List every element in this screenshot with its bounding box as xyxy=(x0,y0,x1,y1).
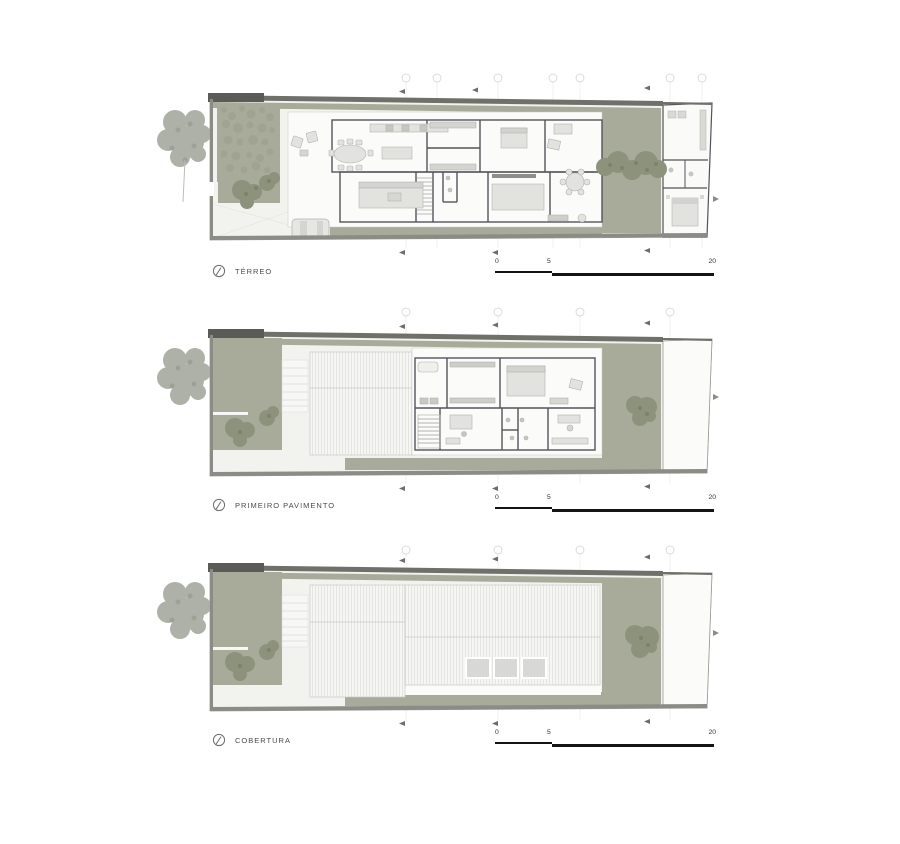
scale-bar-primeiro: 0 5 20 xyxy=(495,494,714,514)
scale-bar-segment xyxy=(552,744,714,747)
plan-label-row-cobertura: COBERTURA xyxy=(212,733,291,747)
annex-strip xyxy=(663,339,712,473)
scale-number-20: 20 xyxy=(708,729,716,736)
large-tree xyxy=(157,348,211,405)
scale-bar-segment xyxy=(495,742,552,745)
grid-bubbles xyxy=(402,546,674,554)
lower-roof xyxy=(310,352,415,455)
scale-bar-segment xyxy=(495,507,552,510)
scale-bar-cobertura: 0 5 20 xyxy=(495,729,714,749)
plan-label-row-terreo: TÉRREO xyxy=(212,264,272,278)
plan-label-cobertura: COBERTURA xyxy=(235,736,291,745)
car xyxy=(292,219,329,238)
scale-number-5: 5 xyxy=(547,494,551,501)
level-marker-icon xyxy=(212,733,226,747)
scale-bar-segment xyxy=(552,509,714,512)
large-tree xyxy=(157,110,211,202)
annex-strip xyxy=(663,573,712,708)
level-marker-icon xyxy=(212,498,226,512)
scale-bar-terreo: 0 5 20 xyxy=(495,258,714,278)
cobertura-plan-drawing xyxy=(150,540,750,740)
annex-unit xyxy=(663,103,712,237)
scale-number-0: 0 xyxy=(495,729,499,736)
grid-bubbles xyxy=(402,308,674,316)
scale-bar-segment xyxy=(495,271,552,274)
level-marker-icon xyxy=(212,264,226,278)
floor-plan-sheet: TÉRREO 0 5 20 xyxy=(0,0,900,844)
grid-bubbles xyxy=(402,74,706,82)
large-tree xyxy=(157,582,211,639)
scale-number-0: 0 xyxy=(495,494,499,501)
scale-number-20: 20 xyxy=(708,494,716,501)
scale-number-20: 20 xyxy=(708,258,716,265)
terreo-plan-drawing xyxy=(150,62,750,262)
skylights xyxy=(466,658,546,678)
plan-label-primeiro-pavimento: PRIMEIRO PAVIMENTO xyxy=(235,501,335,510)
scale-number-0: 0 xyxy=(495,258,499,265)
plan-label-row-primeiro: PRIMEIRO PAVIMENTO xyxy=(212,498,335,512)
roof-planes xyxy=(310,585,601,697)
scale-number-5: 5 xyxy=(547,729,551,736)
plan-label-terreo: TÉRREO xyxy=(235,267,272,276)
scale-number-5: 5 xyxy=(547,258,551,265)
primeiro-pavimento-plan-drawing xyxy=(150,300,750,500)
scale-bar-segment xyxy=(552,273,714,276)
